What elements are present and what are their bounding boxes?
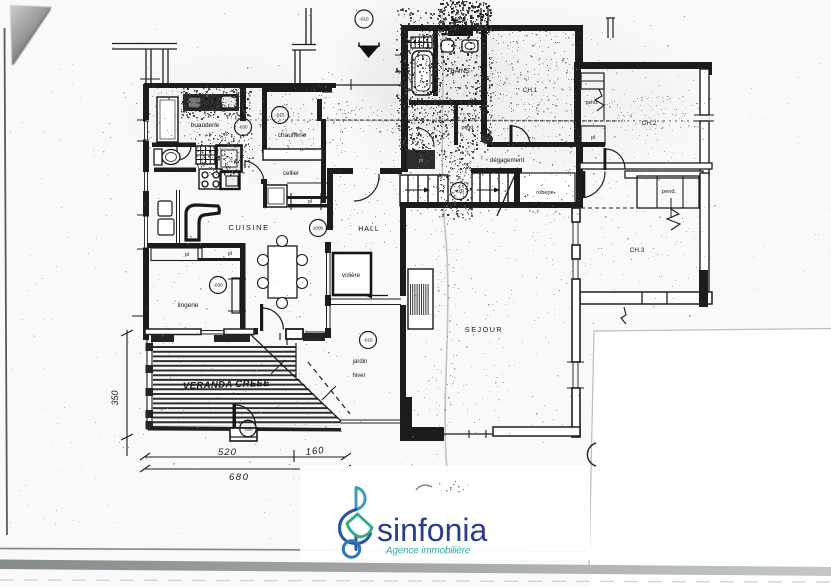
- svg-text:CH.2: CH.2: [642, 120, 657, 127]
- svg-text:520: 520: [218, 447, 237, 458]
- svg-text:+100: +100: [454, 189, 465, 194]
- svg-text:±000: ±000: [313, 226, 324, 231]
- svg-text:pl: pl: [308, 199, 312, 205]
- svg-text:-010: -010: [359, 17, 369, 22]
- svg-text:-030: -030: [238, 125, 248, 130]
- svg-text:350: 350: [110, 390, 120, 405]
- svg-text:pl: pl: [419, 158, 423, 164]
- svg-text:CH.3: CH.3: [630, 247, 645, 254]
- svg-text:pl: pl: [185, 252, 189, 258]
- svg-text:CUISINE: CUISINE: [228, 223, 269, 232]
- svg-text:-040: -040: [243, 427, 253, 432]
- svg-text:-015: -015: [275, 113, 285, 118]
- svg-text:pend.: pend.: [662, 189, 676, 195]
- svg-text:roberie: roberie: [536, 190, 553, 196]
- svg-text:SEJOUR: SEJOUR: [465, 325, 503, 334]
- svg-text:cellier: cellier: [283, 170, 299, 177]
- svg-text:680: 680: [229, 472, 249, 483]
- svg-text:dégagement: dégagement: [490, 157, 525, 164]
- svg-text:-015: -015: [363, 338, 373, 343]
- svg-text:sinfonia: sinfonia: [377, 512, 488, 548]
- svg-text:pl: pl: [228, 251, 232, 257]
- svg-text:Agence immobilière: Agence immobilière: [385, 546, 471, 557]
- svg-text:CH.1: CH.1: [523, 87, 538, 94]
- svg-text:pl: pl: [591, 135, 595, 141]
- svg-text:volière: volière: [342, 272, 361, 279]
- svg-text:lingerie: lingerie: [178, 302, 199, 309]
- svg-text:jardin: jardin: [352, 359, 368, 365]
- svg-text:hiver: hiver: [352, 373, 365, 379]
